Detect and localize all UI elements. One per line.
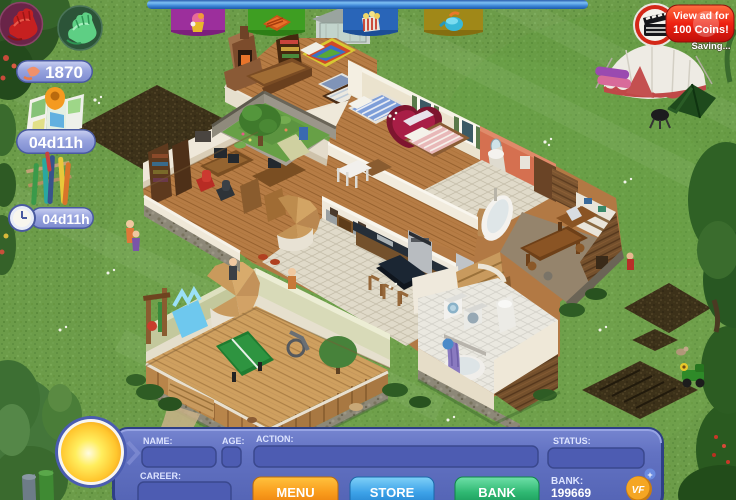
svg-text:NAME:: NAME: bbox=[143, 436, 173, 446]
svg-text:BANK: BANK bbox=[478, 485, 516, 500]
svg-text:Saving...: Saving... bbox=[691, 41, 730, 52]
svg-text:MENU: MENU bbox=[276, 485, 314, 500]
svg-text:04d11h: 04d11h bbox=[29, 135, 83, 152]
svg-text:View ad for: View ad for bbox=[673, 10, 729, 22]
svg-text:AGE:: AGE: bbox=[222, 436, 245, 446]
svg-text:+: + bbox=[647, 470, 652, 480]
svg-text:ACTION:: ACTION: bbox=[256, 434, 294, 444]
svg-text:100 Coins!: 100 Coins! bbox=[673, 24, 729, 36]
svg-text:VF: VF bbox=[632, 485, 646, 496]
svg-text:1870: 1870 bbox=[45, 63, 83, 82]
svg-text:04d11h: 04d11h bbox=[42, 211, 89, 227]
svg-text:STORE: STORE bbox=[370, 485, 415, 500]
svg-text:CAREER:: CAREER: bbox=[140, 471, 181, 481]
svg-text:STATUS:: STATUS: bbox=[553, 436, 591, 446]
svg-text:199669: 199669 bbox=[551, 486, 591, 500]
